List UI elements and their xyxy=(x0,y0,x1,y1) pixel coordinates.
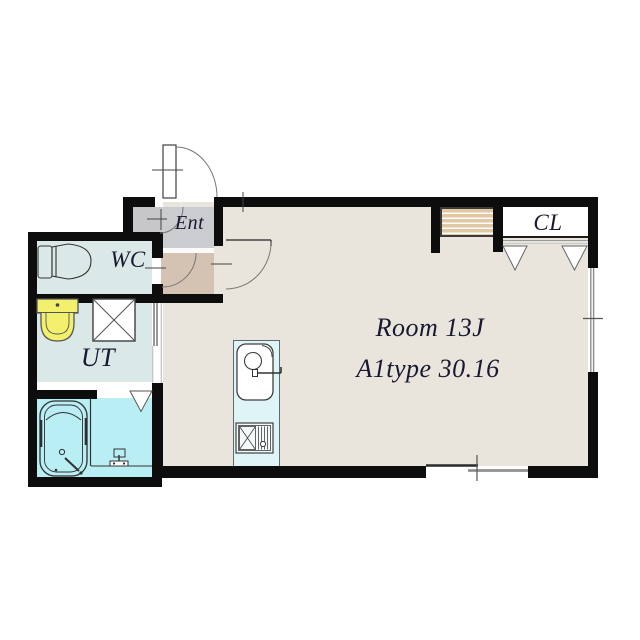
entry-door xyxy=(163,145,217,198)
window-east xyxy=(588,268,598,372)
wall-left-outer xyxy=(28,232,37,487)
label-room-type: A1type 30.16 xyxy=(328,356,528,382)
wall-right-upper xyxy=(588,197,598,268)
wall-right-lower xyxy=(588,372,598,478)
wall-bath-bottom xyxy=(28,477,162,487)
window-south xyxy=(426,466,528,478)
wall-mid-horizontal xyxy=(28,294,223,303)
wall-bath-right xyxy=(152,383,163,477)
label-entrance: Ent xyxy=(162,213,217,233)
wall-wc-top xyxy=(28,232,163,241)
porch-area xyxy=(133,207,161,232)
wall-ut-bath xyxy=(28,390,97,399)
sliding-door-utility xyxy=(153,303,161,383)
entrance-dirt-floor xyxy=(161,253,214,294)
label-room-name: Room 13J xyxy=(330,315,530,341)
label-closet: CL xyxy=(520,211,576,234)
wall-stub-shelf-right xyxy=(493,207,503,252)
wall-entry-stub-v xyxy=(123,197,133,233)
floorplan-canvas: Ent WC UT CL Room 13J A1type 30.16 xyxy=(0,0,640,640)
wall-stub-shelf-left xyxy=(431,207,440,253)
label-utility: UT xyxy=(70,345,126,371)
wall-bottom-right xyxy=(528,466,598,478)
wall-wc-right-b xyxy=(152,284,163,294)
bathroom-floor xyxy=(37,398,152,477)
kitchen-unit xyxy=(233,340,280,468)
shoe-shelf xyxy=(440,207,497,237)
wall-top-main xyxy=(214,197,598,207)
wall-bottom-left xyxy=(160,466,426,478)
label-wc: WC xyxy=(102,248,154,271)
